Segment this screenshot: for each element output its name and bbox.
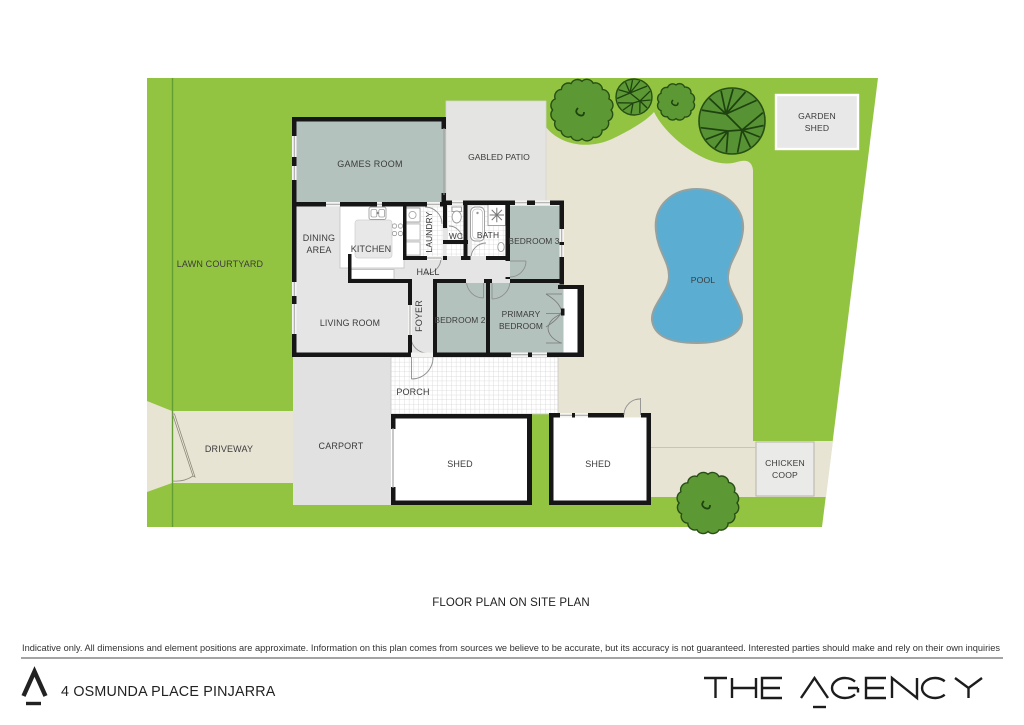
svg-text:GARDEN: GARDEN xyxy=(798,111,836,121)
svg-text:4 OSMUNDA PLACE PINJARRA: 4 OSMUNDA PLACE PINJARRA xyxy=(61,684,276,700)
svg-text:WC: WC xyxy=(449,231,463,241)
svg-text:BEDROOM 3: BEDROOM 3 xyxy=(508,236,559,246)
svg-text:PRIMARY: PRIMARY xyxy=(502,309,541,319)
svg-text:LAWN COURTYARD: LAWN COURTYARD xyxy=(177,259,264,269)
svg-text:AREA: AREA xyxy=(306,245,331,255)
svg-text:SHED: SHED xyxy=(447,459,473,469)
svg-text:BEDROOM: BEDROOM xyxy=(499,321,543,331)
svg-text:KITCHEN: KITCHEN xyxy=(351,244,392,254)
svg-text:LAUNDRY: LAUNDRY xyxy=(424,211,434,252)
svg-text:HALL: HALL xyxy=(416,267,439,277)
svg-text:BATH: BATH xyxy=(477,230,499,240)
svg-text:CHICKEN: CHICKEN xyxy=(765,458,805,468)
svg-text:GABLED PATIO: GABLED PATIO xyxy=(468,152,530,162)
svg-text:DRIVEWAY: DRIVEWAY xyxy=(205,444,253,454)
svg-text:BEDROOM 2: BEDROOM 2 xyxy=(434,315,485,325)
svg-text:PORCH: PORCH xyxy=(396,387,429,397)
svg-text:GAMES ROOM: GAMES ROOM xyxy=(337,159,403,169)
svg-text:FLOOR PLAN ON SITE PLAN: FLOOR PLAN ON SITE PLAN xyxy=(432,597,590,609)
svg-text:SHED: SHED xyxy=(805,123,829,133)
svg-text:FOYER: FOYER xyxy=(414,300,424,332)
svg-text:LIVING ROOM: LIVING ROOM xyxy=(320,318,380,328)
svg-text:CARPORT: CARPORT xyxy=(319,441,364,451)
svg-text:Indicative only. All dimension: Indicative only. All dimensions and elem… xyxy=(22,643,1000,653)
svg-text:COOP: COOP xyxy=(772,470,798,480)
svg-text:SHED: SHED xyxy=(585,459,611,469)
svg-text:DINING: DINING xyxy=(303,233,335,243)
svg-text:POOL: POOL xyxy=(691,275,716,285)
